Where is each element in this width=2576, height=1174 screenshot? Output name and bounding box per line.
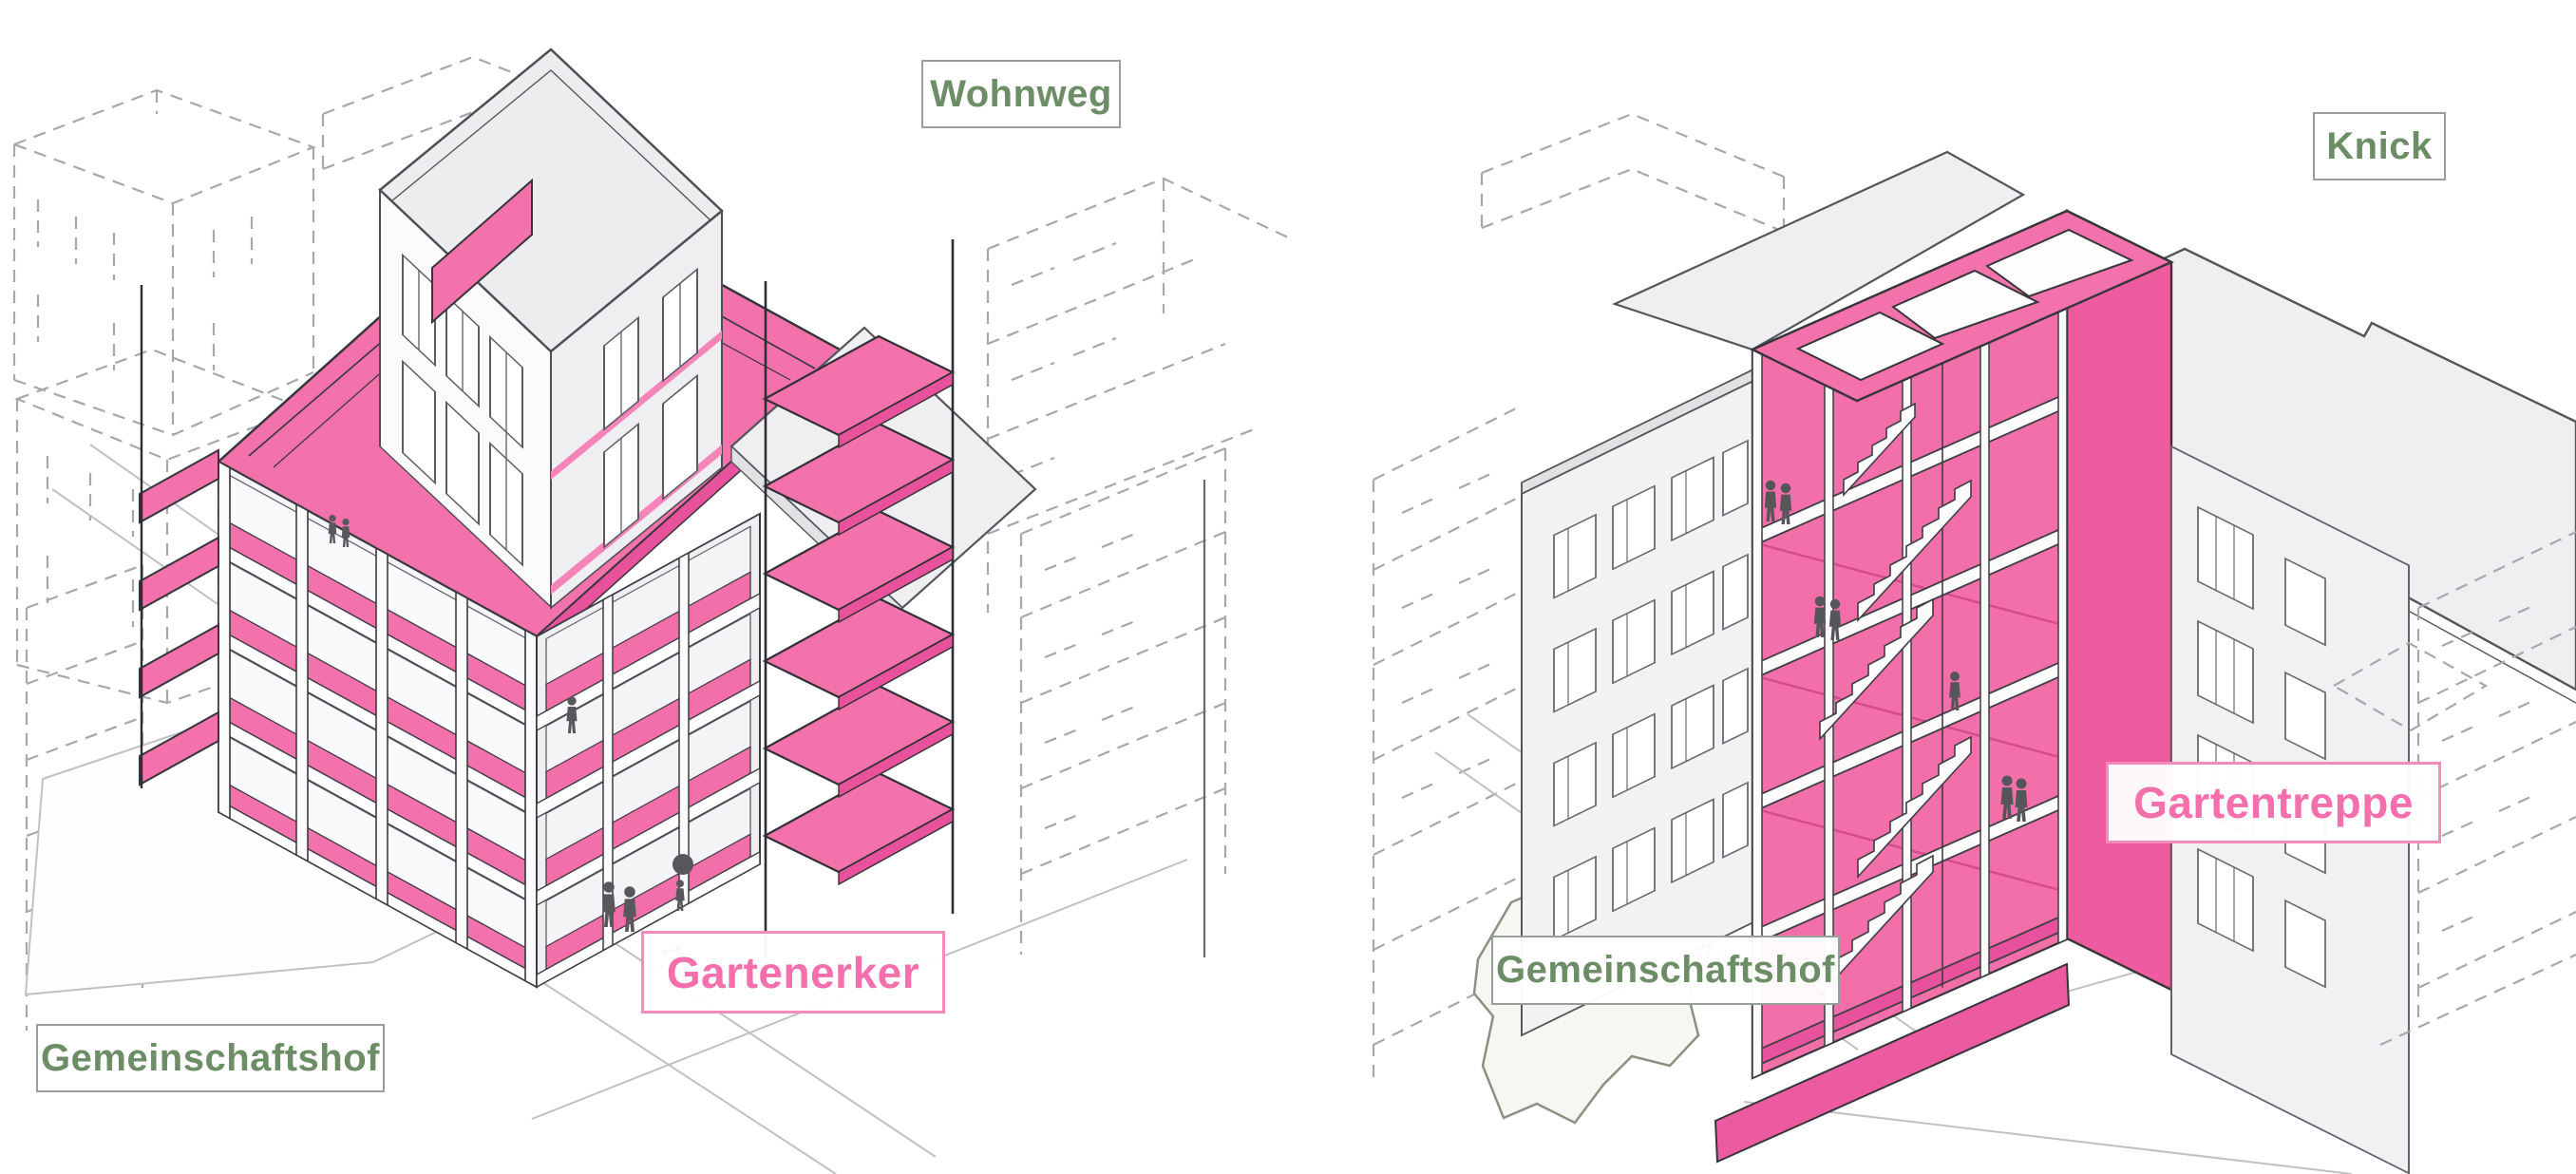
wireframe-context-buildings-right (988, 179, 1288, 955)
label-gemeinschaftshof-right: Gemeinschaftshof (1491, 936, 1840, 1005)
label-gartenerker-text: Gartenerker (667, 947, 919, 998)
axonometric-illustration (0, 0, 2576, 1174)
label-gartentreppe-text: Gartentreppe (2133, 777, 2414, 828)
label-gartentreppe: Gartentreppe (2106, 762, 2441, 843)
gartentreppe-stair-tower (1715, 211, 2171, 1162)
label-gemeinschaftshof-right-text: Gemeinschaftshof (1496, 949, 1835, 992)
label-gartenerker: Gartenerker (641, 931, 945, 1013)
gartentreppe-diagram (1373, 114, 2576, 1174)
label-gemeinschaftshof-left-text: Gemeinschaftshof (41, 1037, 380, 1080)
label-wohnweg-text: Wohnweg (930, 73, 1112, 116)
label-gemeinschaftshof-left: Gemeinschaftshof (36, 1024, 385, 1092)
diagram-stage: Wohnweg Gemeinschaftshof Gartenerker Kni… (0, 0, 2576, 1174)
ball-icon (672, 854, 693, 875)
label-knick: Knick (2313, 112, 2446, 180)
label-knick-text: Knick (2326, 125, 2432, 168)
label-wohnweg: Wohnweg (921, 60, 1121, 128)
tower-side-face (2067, 211, 2171, 990)
